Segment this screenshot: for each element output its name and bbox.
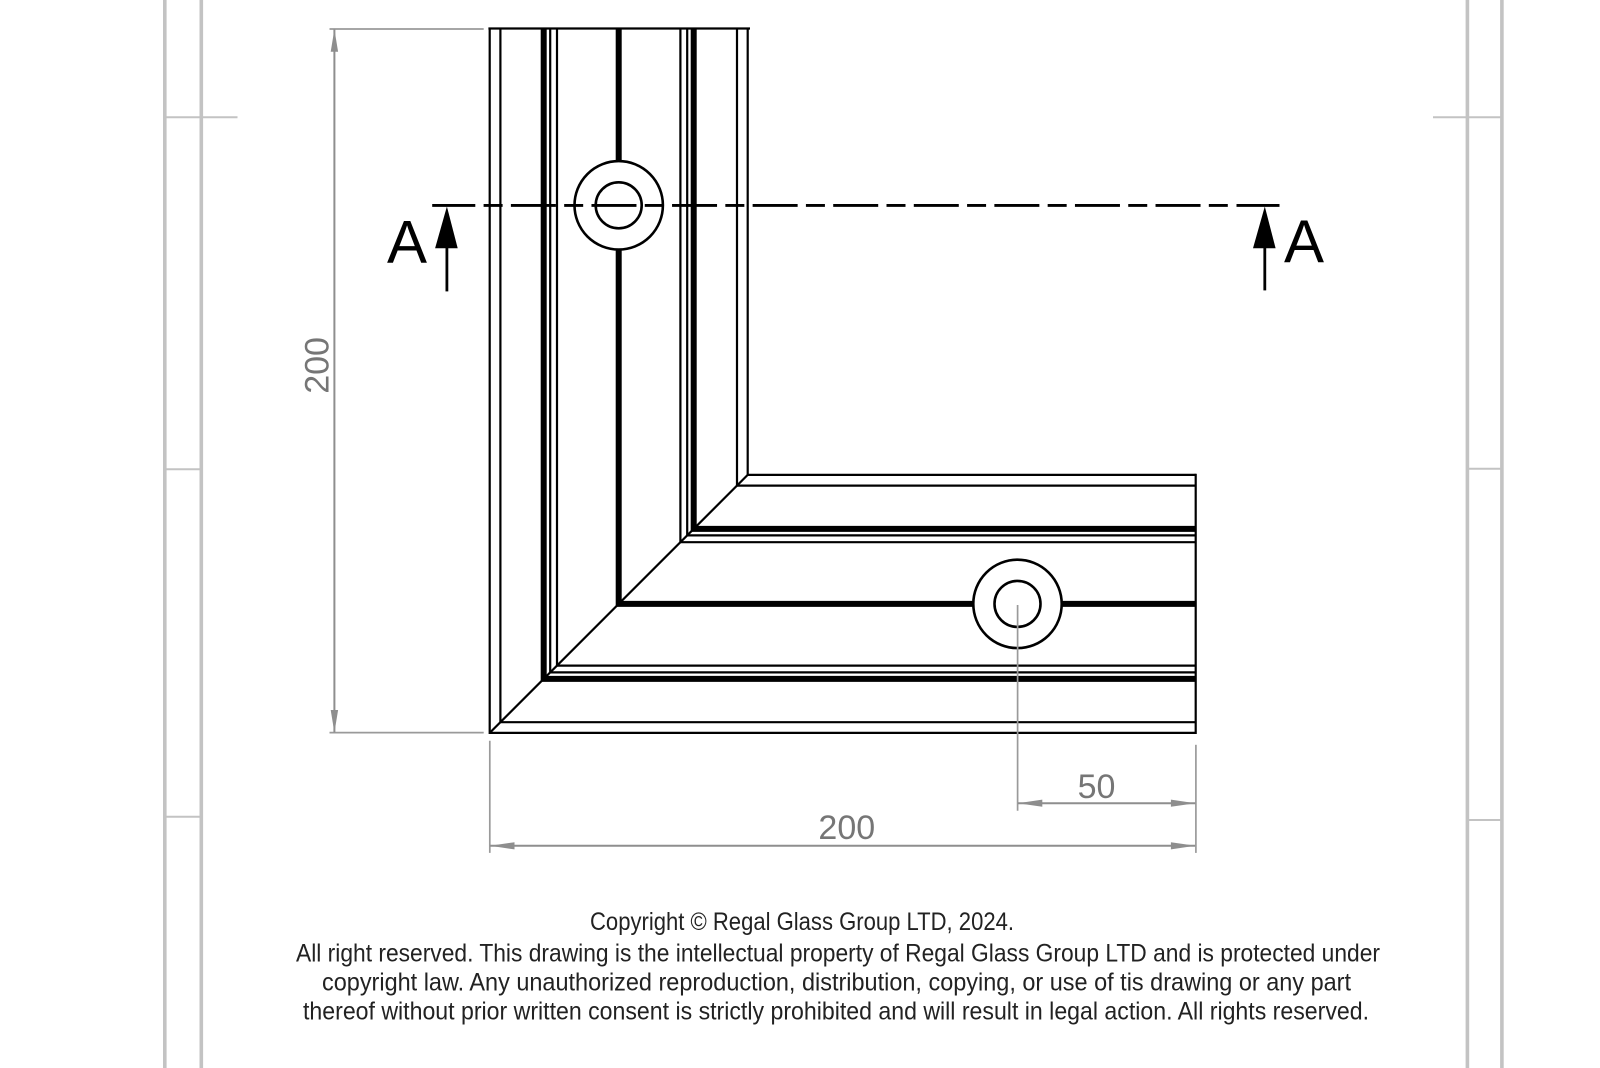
svg-text:A: A [1284, 208, 1324, 275]
svg-text:50: 50 [1078, 768, 1116, 806]
svg-text:200: 200 [818, 809, 875, 847]
svg-text:thereof without prior written: thereof without prior written consent is… [303, 997, 1369, 1025]
svg-text:A: A [387, 209, 427, 276]
svg-text:All right reserved. This drawi: All right reserved. This drawing is the … [296, 940, 1380, 968]
svg-text:copyright law. Any unauthorize: copyright law. Any unauthorized reproduc… [322, 969, 1351, 997]
svg-text:Copyright © Regal Glass Group: Copyright © Regal Glass Group LTD, 2024. [590, 908, 1014, 936]
svg-text:200: 200 [299, 337, 337, 394]
